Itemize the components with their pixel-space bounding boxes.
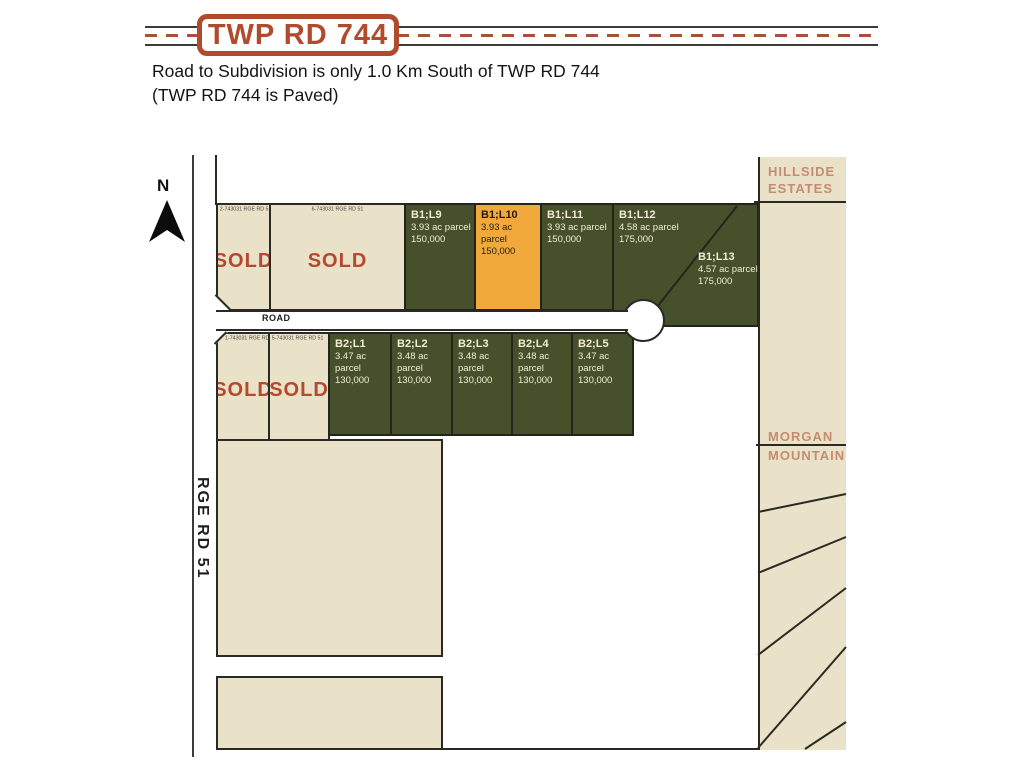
twp-rd-744-badge: TWP RD 744 <box>197 14 399 56</box>
lot-b1-l13[interactable]: B1;L13 4.57 ac parcel 175,000 <box>698 251 758 288</box>
lot-price: 150,000 <box>481 246 540 258</box>
lot-size: 3.93 ac parcel <box>481 222 540 246</box>
north-label: N <box>157 176 169 196</box>
lot-price: 150,000 <box>411 234 474 246</box>
lot-b2-l3[interactable]: B2;L3 3.48 ac parcel 130,000 <box>451 332 513 436</box>
lot-id: B1;L10 <box>481 209 540 222</box>
sold-parcel-5-743031[interactable]: 5-743031 RGE RD 51 SOLD <box>268 332 330 441</box>
lot-price: 130,000 <box>397 375 451 387</box>
road-edge-top <box>216 310 628 312</box>
lot-b2-l2[interactable]: B2;L2 3.48 ac parcel 130,000 <box>390 332 453 436</box>
sold-parcel-2-743031[interactable]: 2-743031 RGE RD 51 SOLD <box>216 203 271 311</box>
lot-price: 150,000 <box>547 234 612 246</box>
note-line-1: Road to Subdivision is only 1.0 Km South… <box>152 59 792 83</box>
lot-id: B1;L13 <box>698 251 758 264</box>
road-edge-bottom <box>216 329 628 331</box>
subdivision-flyer: TWP RD 744 Road to Subdivision is only 1… <box>0 0 1024 768</box>
lot-price: 130,000 <box>458 375 511 387</box>
lot-size: 3.47 ac parcel <box>335 351 390 375</box>
lot-price: 175,000 <box>698 276 758 288</box>
hillside-estates-label: HILLSIDE ESTATES <box>768 163 835 197</box>
sold-label: SOLD <box>218 342 268 439</box>
hillside-boundary-line <box>754 201 846 203</box>
lot-b2-l5[interactable]: B2;L5 3.47 ac parcel 130,000 <box>571 332 634 436</box>
map-top-boundary-tick <box>215 155 217 205</box>
lot-id: B2;L2 <box>397 338 451 351</box>
unlabeled-parcel-lower[interactable] <box>216 676 443 750</box>
lot-b1-l10[interactable]: B1;L10 3.93 ac parcel 150,000 <box>474 203 542 311</box>
lot-size: 3.48 ac parcel <box>458 351 511 375</box>
note-line-2: (TWP RD 744 is Paved) <box>152 83 792 107</box>
hillside-line1: HILLSIDE <box>768 163 835 180</box>
lot-b1-l11[interactable]: B1;L11 3.93 ac parcel 150,000 <box>540 203 614 311</box>
lot-size: 4.57 ac parcel <box>698 264 758 276</box>
subdivision-note: Road to Subdivision is only 1.0 Km South… <box>152 59 792 107</box>
sold-label: SOLD <box>270 342 328 439</box>
sold-parcel-6-743031[interactable]: 6-743031 RGE RD 51 SOLD <box>269 203 406 311</box>
lot-id: B2;L4 <box>518 338 571 351</box>
road-label: ROAD <box>262 313 291 323</box>
morgan-boundary-line <box>756 444 846 446</box>
lot-size: 3.48 ac parcel <box>518 351 571 375</box>
parcel-id: 6-743031 RGE RD 51 <box>279 205 396 212</box>
morgan-label-line1: MORGAN <box>768 428 833 445</box>
lot-id: B2;L1 <box>335 338 390 351</box>
sold-label: SOLD <box>271 213 404 309</box>
rge-rd-51-road-line <box>192 155 194 757</box>
parcel-id: 5-743031 RGE RD 51 <box>270 334 321 341</box>
north-arrow-icon <box>147 198 187 244</box>
parcel-id: 2-743031 RGE RD 51 <box>218 205 263 212</box>
lot-size: 3.93 ac parcel <box>411 222 474 234</box>
lot-b2-l4[interactable]: B2;L4 3.48 ac parcel 130,000 <box>511 332 573 436</box>
sold-label: SOLD <box>218 213 269 309</box>
lot-id: B1;L11 <box>547 209 612 222</box>
lot-price: 130,000 <box>335 375 390 387</box>
lot-size: 3.47 ac parcel <box>578 351 632 375</box>
mountain-contour-lines <box>758 450 846 750</box>
hillside-line2: ESTATES <box>768 180 835 197</box>
unlabeled-parcel-upper[interactable] <box>216 439 443 657</box>
lot-id: B2;L3 <box>458 338 511 351</box>
lot-b2-l1[interactable]: B2;L1 3.47 ac parcel 130,000 <box>328 332 392 436</box>
lot-price: 130,000 <box>578 375 632 387</box>
rge-rd-51-label: RGE RD 51 <box>193 477 211 607</box>
sold-parcel-1-743031[interactable]: 1-743031 RGE RD 51 SOLD <box>216 332 270 441</box>
lot-price: 130,000 <box>518 375 571 387</box>
lot-id: B1;L9 <box>411 209 474 222</box>
lot-size: 3.93 ac parcel <box>547 222 612 234</box>
lot-b1-l9[interactable]: B1;L9 3.93 ac parcel 150,000 <box>404 203 476 311</box>
lot-size: 3.48 ac parcel <box>397 351 451 375</box>
lot-id: B2;L5 <box>578 338 632 351</box>
